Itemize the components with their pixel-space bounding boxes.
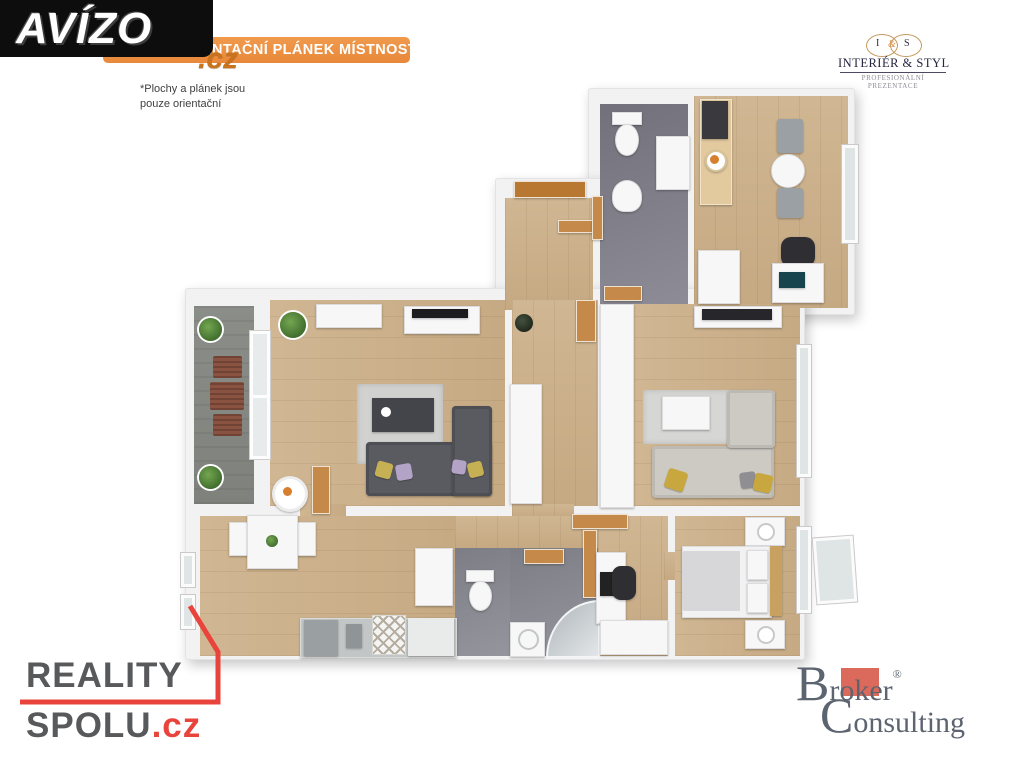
nook-cabinet bbox=[600, 620, 668, 655]
dining-chair-left bbox=[229, 522, 248, 556]
spolu-text: SPOLU bbox=[26, 706, 152, 745]
nook-shelf-h bbox=[572, 514, 628, 529]
disclaimer-line-2: pouze orientační bbox=[140, 97, 245, 112]
bathroom-counter bbox=[656, 136, 690, 190]
broker-consulting-logo: Broker® Consulting bbox=[792, 660, 1022, 760]
interier-styl-logo: I & S INTERIÉR & STYL PROFESIONÁLNÍ PREZ… bbox=[838, 30, 948, 88]
tv-2 bbox=[702, 309, 772, 320]
builtin-wardrobe bbox=[600, 304, 634, 508]
bathroom-door bbox=[604, 286, 642, 301]
pillow-yellow-4 bbox=[752, 472, 773, 493]
reality-spolu-line-2: SPOLU.cz bbox=[26, 706, 201, 746]
monogram-letter-s: S bbox=[904, 38, 910, 49]
living-door bbox=[312, 466, 330, 514]
living-plant bbox=[280, 312, 306, 338]
sitting-window bbox=[796, 344, 812, 478]
monogram-letter-i: I bbox=[876, 38, 879, 49]
bedroom-window-sill bbox=[812, 535, 859, 606]
desk-monitor bbox=[779, 272, 805, 288]
office-chair-2 bbox=[612, 566, 636, 600]
pillow-lilac-1 bbox=[395, 463, 414, 482]
sideboard bbox=[316, 304, 382, 328]
bed-pillow-1 bbox=[747, 550, 768, 580]
sofa-2-chaise bbox=[727, 390, 775, 448]
room-entry-hall bbox=[505, 198, 593, 310]
fridge bbox=[698, 250, 740, 304]
toilet bbox=[615, 124, 639, 156]
round-chair-center bbox=[283, 487, 292, 496]
bed-pillow-2 bbox=[747, 583, 768, 613]
washing-machine-door bbox=[518, 629, 539, 650]
balcony-plant-top bbox=[199, 318, 222, 341]
consulting-rest: onsulting bbox=[853, 706, 965, 739]
balcony-table bbox=[210, 382, 244, 410]
wine-rack bbox=[372, 615, 406, 655]
lamp-top bbox=[757, 523, 775, 541]
interier-styl-tagline: PROFESIONÁLNÍ PREZENTACE bbox=[838, 74, 948, 90]
hallway-door bbox=[576, 300, 596, 342]
dining-chair-right bbox=[297, 522, 316, 556]
kitchenette-fridge bbox=[304, 620, 338, 656]
registered-mark: ® bbox=[893, 667, 902, 681]
nook-shelf-v bbox=[583, 530, 597, 598]
tall-cabinet bbox=[415, 548, 453, 606]
reality-spolu-line-1: REALITY bbox=[26, 656, 183, 696]
coffee-table-2 bbox=[662, 396, 710, 430]
hallway-plant bbox=[515, 314, 533, 332]
bathroom-door-side bbox=[592, 196, 603, 240]
interier-styl-rule bbox=[840, 72, 946, 73]
dining-window-1 bbox=[180, 552, 196, 588]
sink-decor bbox=[710, 155, 719, 164]
cooktop bbox=[702, 101, 728, 139]
dining-chair-top bbox=[777, 119, 803, 153]
monogram-ampersand: & bbox=[888, 39, 896, 50]
disclaimer-line-1: *Plochy a plánek jsou bbox=[140, 82, 245, 97]
bath-shelf bbox=[524, 549, 564, 564]
avizo-logo: AVÍZO bbox=[0, 0, 213, 57]
reality-spolu-logo: REALITY SPOLU.cz bbox=[18, 598, 258, 763]
bedroom-window bbox=[796, 526, 812, 614]
round-table bbox=[771, 154, 805, 188]
bed-blanket bbox=[682, 551, 740, 611]
dining-chair-bottom bbox=[777, 188, 803, 218]
consulting-initial: C bbox=[820, 687, 853, 743]
balcony-glass-door bbox=[249, 330, 271, 460]
balcony-chair-1 bbox=[213, 356, 242, 378]
flyer-page: { "branding": { "avizo": { "text": "AVÍZ… bbox=[0, 0, 1024, 768]
sofa-chaise bbox=[452, 406, 492, 496]
kitchen-window bbox=[841, 144, 859, 244]
kitchenette-appliance bbox=[346, 624, 362, 648]
kitchenette-counter-white bbox=[408, 618, 454, 656]
consulting-word: Consulting bbox=[820, 692, 965, 740]
table-decor bbox=[381, 407, 391, 417]
table-plant bbox=[266, 535, 278, 547]
bathroom-sink bbox=[612, 180, 642, 212]
wc-toilet bbox=[469, 581, 492, 611]
hallway-wardrobe bbox=[510, 384, 542, 504]
interier-styl-name: INTERIÉR & STYL bbox=[838, 56, 948, 71]
tv bbox=[412, 309, 468, 318]
lamp-bottom bbox=[757, 626, 775, 644]
bed-headboard bbox=[770, 546, 782, 616]
balcony-plant-bottom bbox=[199, 466, 222, 489]
spolu-cz-suffix: .cz bbox=[152, 706, 202, 745]
entry-door bbox=[514, 181, 586, 198]
balcony-chair-2 bbox=[213, 414, 242, 436]
disclaimer: *Plochy a plánek jsou pouze orientační bbox=[140, 82, 245, 112]
avizo-logo-text: AVÍZO bbox=[16, 3, 152, 55]
pillow-lilac-2 bbox=[451, 459, 467, 475]
